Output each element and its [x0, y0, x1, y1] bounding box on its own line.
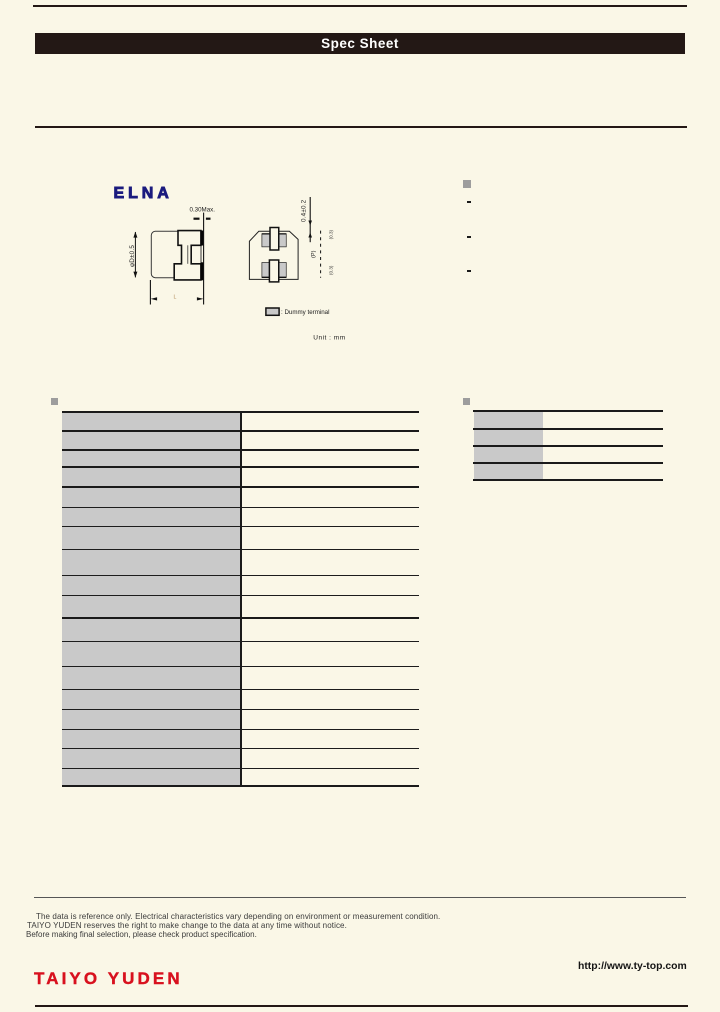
svg-text:0.4±0.2: 0.4±0.2 [301, 199, 308, 222]
svg-text:Unit : mm: Unit : mm [313, 335, 345, 342]
svg-text:0.30Max.: 0.30Max. [190, 206, 216, 213]
svg-text:(0.3): (0.3) [329, 229, 334, 239]
svg-text:: Dummy terminal: : Dummy terminal [281, 309, 329, 316]
svg-text:φD±0.5: φD±0.5 [129, 245, 136, 267]
svg-text:(P): (P) [311, 250, 317, 258]
svg-text:(0.3): (0.3) [329, 265, 334, 275]
svg-text:L: L [174, 295, 177, 301]
